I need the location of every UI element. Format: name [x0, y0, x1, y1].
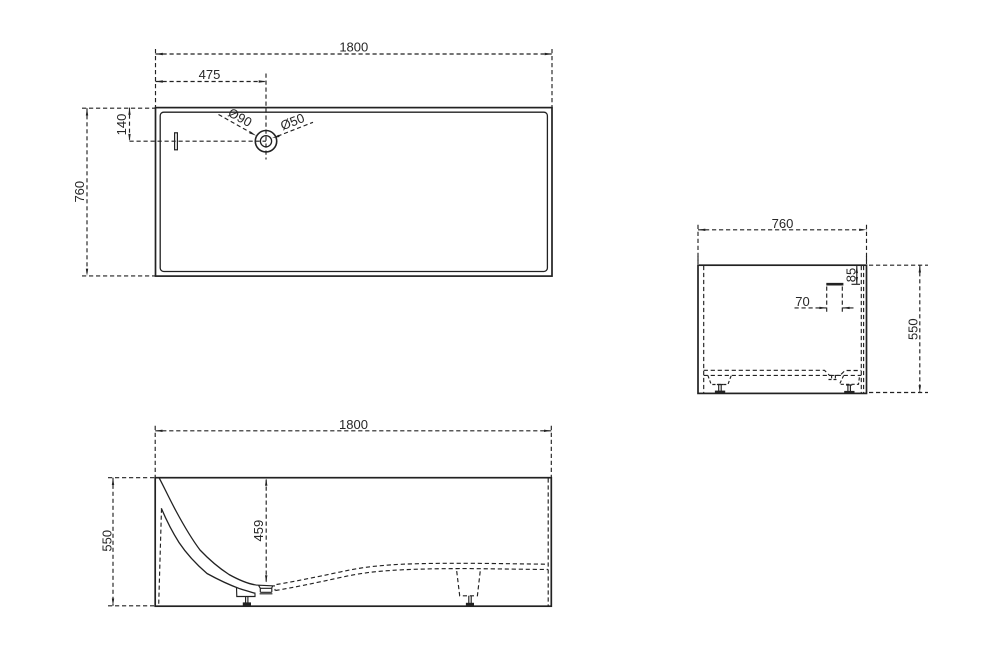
svg-text:Ø50: Ø50 — [278, 110, 306, 133]
svg-text:550: 550 — [906, 318, 921, 340]
svg-text:760: 760 — [772, 216, 794, 231]
svg-text:85: 85 — [844, 268, 859, 282]
svg-text:475: 475 — [199, 67, 221, 82]
svg-text:459: 459 — [251, 520, 266, 542]
svg-text:1800: 1800 — [339, 417, 368, 432]
svg-text:760: 760 — [72, 181, 87, 203]
svg-text:140: 140 — [114, 114, 129, 136]
svg-text:1800: 1800 — [339, 40, 368, 55]
svg-text:70: 70 — [795, 294, 809, 309]
svg-text:550: 550 — [99, 530, 114, 552]
